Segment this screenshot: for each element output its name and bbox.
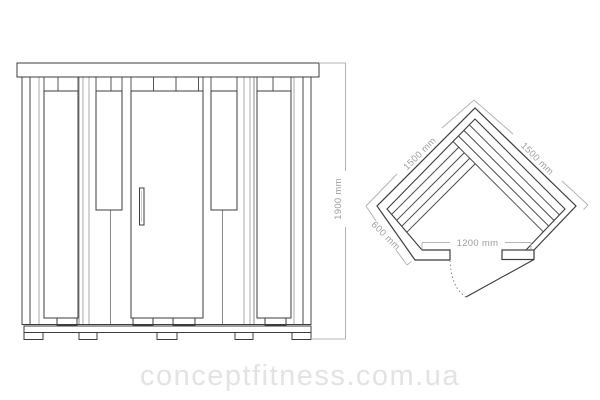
door-swing-arc bbox=[450, 261, 466, 297]
inner-wall-outline bbox=[387, 119, 565, 250]
front-elevation bbox=[17, 63, 319, 340]
feet bbox=[24, 333, 311, 340]
front-wall-right-cap bbox=[502, 250, 534, 260]
glass-panel-far-right bbox=[257, 91, 291, 318]
base-band bbox=[24, 326, 311, 333]
door-handle bbox=[140, 188, 145, 225]
sauna-drawing: 1900 mm bbox=[0, 0, 600, 400]
bench-slats-left bbox=[392, 147, 476, 232]
support-blocks bbox=[57, 318, 286, 325]
glass-panel-right bbox=[211, 91, 237, 210]
cornice bbox=[17, 63, 319, 77]
bench-slats-right bbox=[453, 125, 559, 232]
plan-front-width-label: 1200 mm bbox=[457, 238, 499, 249]
glass-panel-far-left bbox=[44, 91, 78, 318]
plan-left-wall-label: 1500 mm bbox=[401, 135, 438, 172]
glass-panel-left bbox=[96, 91, 122, 210]
door-leaf-open bbox=[466, 260, 534, 298]
plan-right-wall-label: 1500 mm bbox=[518, 140, 555, 177]
technical-drawing-canvas: 1900 mm bbox=[0, 0, 600, 400]
plan-view bbox=[366, 100, 588, 297]
height-dimension-label: 1900 mm bbox=[333, 178, 344, 220]
plan-side-wall-label: 600 mm bbox=[369, 219, 402, 252]
front-wall-left-cap bbox=[422, 250, 450, 260]
watermark: conceptfitness.com.ua bbox=[0, 360, 600, 398]
